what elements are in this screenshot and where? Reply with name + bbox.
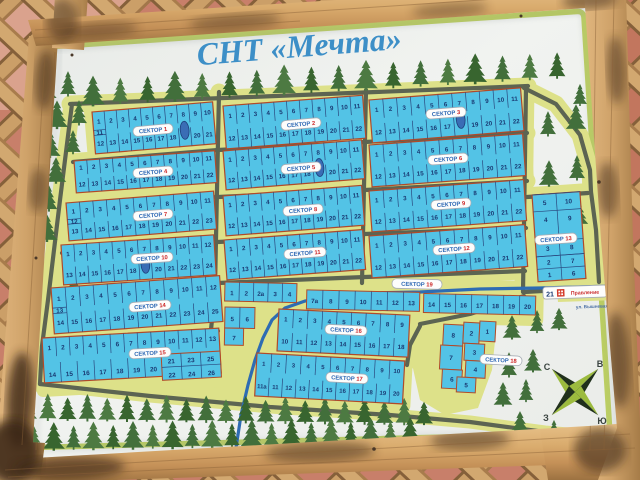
svg-text:15: 15 [117,178,125,186]
svg-text:22: 22 [514,163,522,171]
svg-text:21: 21 [168,358,176,365]
svg-text:14: 14 [57,320,65,328]
svg-text:16: 16 [145,136,153,144]
svg-text:20: 20 [181,174,189,182]
svg-text:16: 16 [279,131,287,139]
svg-text:21: 21 [546,291,554,298]
svg-text:23: 23 [187,357,195,364]
svg-text:15: 15 [266,132,274,140]
svg-text:16: 16 [278,219,286,227]
svg-text:19: 19 [474,257,482,265]
svg-text:20: 20 [193,132,201,140]
svg-text:11a: 11a [257,384,268,391]
svg-text:20: 20 [329,169,337,177]
svg-text:15: 15 [417,261,425,269]
svg-text:13: 13 [241,176,249,184]
svg-text:16: 16 [368,342,376,349]
svg-text:13: 13 [389,172,397,180]
svg-text:11: 11 [511,96,519,104]
svg-text:16: 16 [339,389,347,395]
svg-text:18: 18 [113,315,121,323]
svg-text:20: 20 [485,120,493,128]
svg-text:Ю: Ю [597,416,606,426]
svg-text:10: 10 [341,104,349,112]
svg-text:19: 19 [316,216,324,224]
svg-text:10: 10 [341,237,349,245]
svg-text:26: 26 [208,370,216,377]
svg-text:12: 12 [310,340,318,347]
svg-text:12: 12 [375,264,383,272]
svg-text:19: 19 [317,128,325,136]
svg-text:20: 20 [150,366,158,373]
svg-text:17: 17 [125,224,133,232]
svg-text:20: 20 [330,127,338,135]
svg-text:З: З [543,413,549,423]
svg-text:12: 12 [78,181,86,189]
svg-text:10: 10 [565,198,573,206]
svg-text:12: 12 [375,129,383,137]
svg-text:21: 21 [499,119,507,127]
svg-text:21: 21 [168,265,176,272]
svg-text:15: 15 [417,215,425,223]
svg-text:10: 10 [500,188,508,196]
svg-text:15: 15 [444,302,452,309]
svg-text:17: 17 [383,343,391,350]
svg-text:22: 22 [206,172,214,180]
svg-text:10: 10 [393,369,401,375]
svg-text:20: 20 [329,215,337,223]
svg-text:20: 20 [487,210,495,218]
svg-text:13: 13 [389,217,397,225]
svg-text:21: 21 [194,173,202,181]
svg-text:22: 22 [355,125,363,133]
svg-text:16: 16 [460,302,468,309]
svg-text:10: 10 [190,198,198,206]
svg-text:19: 19 [508,303,516,310]
svg-text:18: 18 [116,368,124,375]
svg-text:21: 21 [342,258,350,266]
svg-text:13: 13 [325,340,333,347]
svg-text:14: 14 [403,216,411,224]
svg-text:19: 19 [317,260,325,268]
svg-text:21: 21 [342,126,350,134]
svg-text:2a: 2a [257,291,265,298]
svg-text:15: 15 [326,388,334,394]
svg-text:22: 22 [515,208,523,216]
svg-text:10: 10 [192,156,200,164]
svg-text:12: 12 [229,267,237,275]
svg-text:17: 17 [292,130,300,138]
svg-text:11: 11 [205,155,213,163]
svg-text:19: 19 [127,314,135,322]
svg-text:14: 14 [254,133,262,141]
svg-text:20: 20 [330,259,338,267]
svg-text:11: 11 [96,129,104,137]
svg-text:20: 20 [488,256,496,264]
svg-text:16: 16 [82,370,90,377]
svg-text:12: 12 [195,337,203,344]
svg-text:10: 10 [179,243,187,250]
svg-text:14: 14 [49,372,57,379]
svg-text:14: 14 [253,175,261,183]
svg-text:16: 16 [430,125,438,133]
svg-text:16: 16 [104,269,112,276]
svg-text:16: 16 [130,178,138,186]
svg-text:18: 18 [129,268,137,275]
svg-text:15: 15 [266,220,274,228]
svg-text:10: 10 [497,97,505,105]
svg-text:15: 15 [66,371,74,378]
svg-text:19: 19 [379,391,387,397]
svg-text:10: 10 [340,193,348,201]
svg-text:18: 18 [304,217,312,225]
svg-text:18: 18 [169,134,177,142]
svg-text:25: 25 [207,356,215,363]
svg-text:19: 19 [133,367,141,374]
svg-text:21: 21 [206,131,214,139]
svg-text:21: 21 [341,168,349,176]
svg-text:11: 11 [515,232,523,240]
svg-text:12: 12 [204,242,212,249]
svg-text:16: 16 [431,169,439,177]
svg-text:Правление: Правление [571,290,600,297]
svg-text:12: 12 [97,140,105,148]
svg-text:12: 12 [285,386,293,392]
svg-text:14: 14 [254,265,262,273]
svg-text:15: 15 [267,264,275,272]
svg-text:14: 14 [121,138,129,146]
svg-text:12: 12 [228,135,236,143]
svg-text:15: 15 [266,174,274,182]
svg-text:17: 17 [444,168,452,176]
svg-text:22: 22 [180,264,188,271]
svg-text:11: 11 [204,197,212,205]
svg-text:10: 10 [182,286,190,294]
svg-text:11: 11 [354,236,362,244]
svg-text:14: 14 [403,262,411,270]
svg-text:17: 17 [292,262,300,270]
svg-text:12: 12 [392,300,400,307]
svg-text:17: 17 [444,124,452,132]
svg-text:10: 10 [281,338,289,345]
svg-text:21: 21 [502,255,510,263]
svg-text:19: 19 [472,166,480,174]
svg-text:12: 12 [228,177,236,185]
svg-text:23: 23 [193,263,201,270]
svg-text:17: 17 [157,135,165,143]
svg-text:24: 24 [206,263,214,270]
svg-text:11: 11 [353,192,361,200]
svg-text:11: 11 [192,242,200,249]
svg-text:17: 17 [445,213,453,221]
svg-text:16: 16 [431,214,439,222]
svg-text:17: 17 [99,317,107,325]
svg-text:13: 13 [91,180,99,188]
svg-text:11: 11 [272,385,279,391]
svg-text:14: 14 [253,221,261,229]
svg-text:17: 17 [445,259,453,267]
svg-text:С: С [544,362,551,372]
svg-text:20: 20 [141,313,149,321]
svg-text:25: 25 [212,308,220,316]
svg-text:21: 21 [179,219,187,227]
svg-text:15: 15 [133,137,141,145]
svg-text:18: 18 [458,167,466,175]
svg-text:21: 21 [155,312,163,320]
svg-text:16: 16 [112,225,120,233]
svg-text:7a: 7a [311,298,319,305]
svg-text:15: 15 [354,342,362,349]
svg-text:17: 17 [117,268,125,275]
svg-text:18: 18 [366,390,374,396]
svg-text:22: 22 [169,311,177,319]
svg-text:10: 10 [499,142,507,150]
svg-text:10: 10 [340,147,348,155]
svg-text:12: 12 [210,284,218,292]
svg-text:12: 12 [375,219,383,227]
svg-text:22: 22 [192,218,200,226]
svg-text:22: 22 [516,254,524,262]
svg-text:13: 13 [66,272,74,279]
svg-text:18: 18 [138,223,146,231]
svg-text:22: 22 [354,213,362,221]
svg-text:16: 16 [431,260,439,268]
svg-text:14: 14 [403,171,411,179]
svg-text:15: 15 [91,270,99,277]
svg-text:14: 14 [402,127,410,135]
svg-text:17: 17 [99,369,107,376]
svg-text:24: 24 [188,371,196,378]
svg-text:15: 15 [71,319,79,327]
svg-text:19: 19 [152,222,160,230]
svg-text:14: 14 [428,302,436,309]
svg-text:13: 13 [209,336,217,343]
svg-text:14: 14 [339,341,347,348]
svg-text:11: 11 [182,337,190,344]
svg-text:12: 12 [228,223,236,231]
svg-text:23: 23 [205,217,213,225]
svg-text:11: 11 [514,187,522,195]
svg-text:18: 18 [305,261,313,269]
svg-text:20: 20 [524,304,532,311]
svg-text:16: 16 [279,263,287,271]
svg-text:13: 13 [109,139,117,147]
svg-text:11: 11 [376,299,383,306]
svg-text:21: 21 [341,214,349,222]
svg-text:21: 21 [500,164,508,172]
svg-text:13: 13 [389,128,397,136]
svg-text:18: 18 [492,303,500,310]
svg-text:22: 22 [354,167,362,175]
svg-text:13: 13 [241,134,249,142]
svg-text:11: 11 [296,339,303,346]
svg-text:20: 20 [165,221,173,229]
svg-text:13: 13 [408,300,416,307]
svg-text:22: 22 [513,118,521,126]
svg-text:13: 13 [389,263,397,271]
svg-text:23: 23 [183,310,191,318]
svg-text:13: 13 [242,266,250,274]
svg-text:11: 11 [353,146,361,154]
svg-text:В: В [597,359,604,369]
svg-text:18: 18 [460,258,468,266]
svg-text:10: 10 [500,233,508,241]
svg-text:19: 19 [473,211,481,219]
svg-text:18: 18 [304,129,312,137]
svg-text:20: 20 [155,266,163,273]
svg-text:22: 22 [355,257,363,265]
svg-text:10: 10 [360,299,368,306]
svg-text:11: 11 [354,103,362,111]
svg-text:13: 13 [299,386,307,392]
svg-text:17: 17 [352,389,360,395]
svg-text:13: 13 [56,307,64,315]
svg-text:14: 14 [78,271,86,278]
svg-text:16: 16 [85,318,93,326]
svg-text:14: 14 [85,227,93,235]
svg-text:10: 10 [168,338,176,345]
svg-text:18: 18 [397,344,405,351]
svg-text:19: 19 [471,121,479,129]
svg-text:13: 13 [71,228,79,236]
svg-text:15: 15 [98,226,106,234]
svg-text:11: 11 [196,285,204,293]
svg-text:14: 14 [104,179,112,187]
svg-text:15: 15 [417,170,425,178]
svg-text:СЕКТОР 19: СЕКТОР 19 [401,282,433,289]
svg-text:17: 17 [291,218,299,226]
svg-text:14: 14 [312,387,320,393]
svg-text:17: 17 [476,303,484,310]
svg-text:15: 15 [416,126,424,134]
svg-text:24: 24 [197,309,205,317]
svg-text:22: 22 [168,372,176,379]
svg-text:12: 12 [375,173,383,181]
svg-text:13: 13 [241,222,249,230]
svg-text:18: 18 [459,212,467,220]
svg-text:21: 21 [501,209,509,217]
svg-text:12: 12 [71,218,79,226]
svg-text:20: 20 [486,165,494,173]
svg-text:11: 11 [513,141,521,149]
svg-text:10: 10 [204,109,212,117]
svg-text:20: 20 [393,392,401,398]
